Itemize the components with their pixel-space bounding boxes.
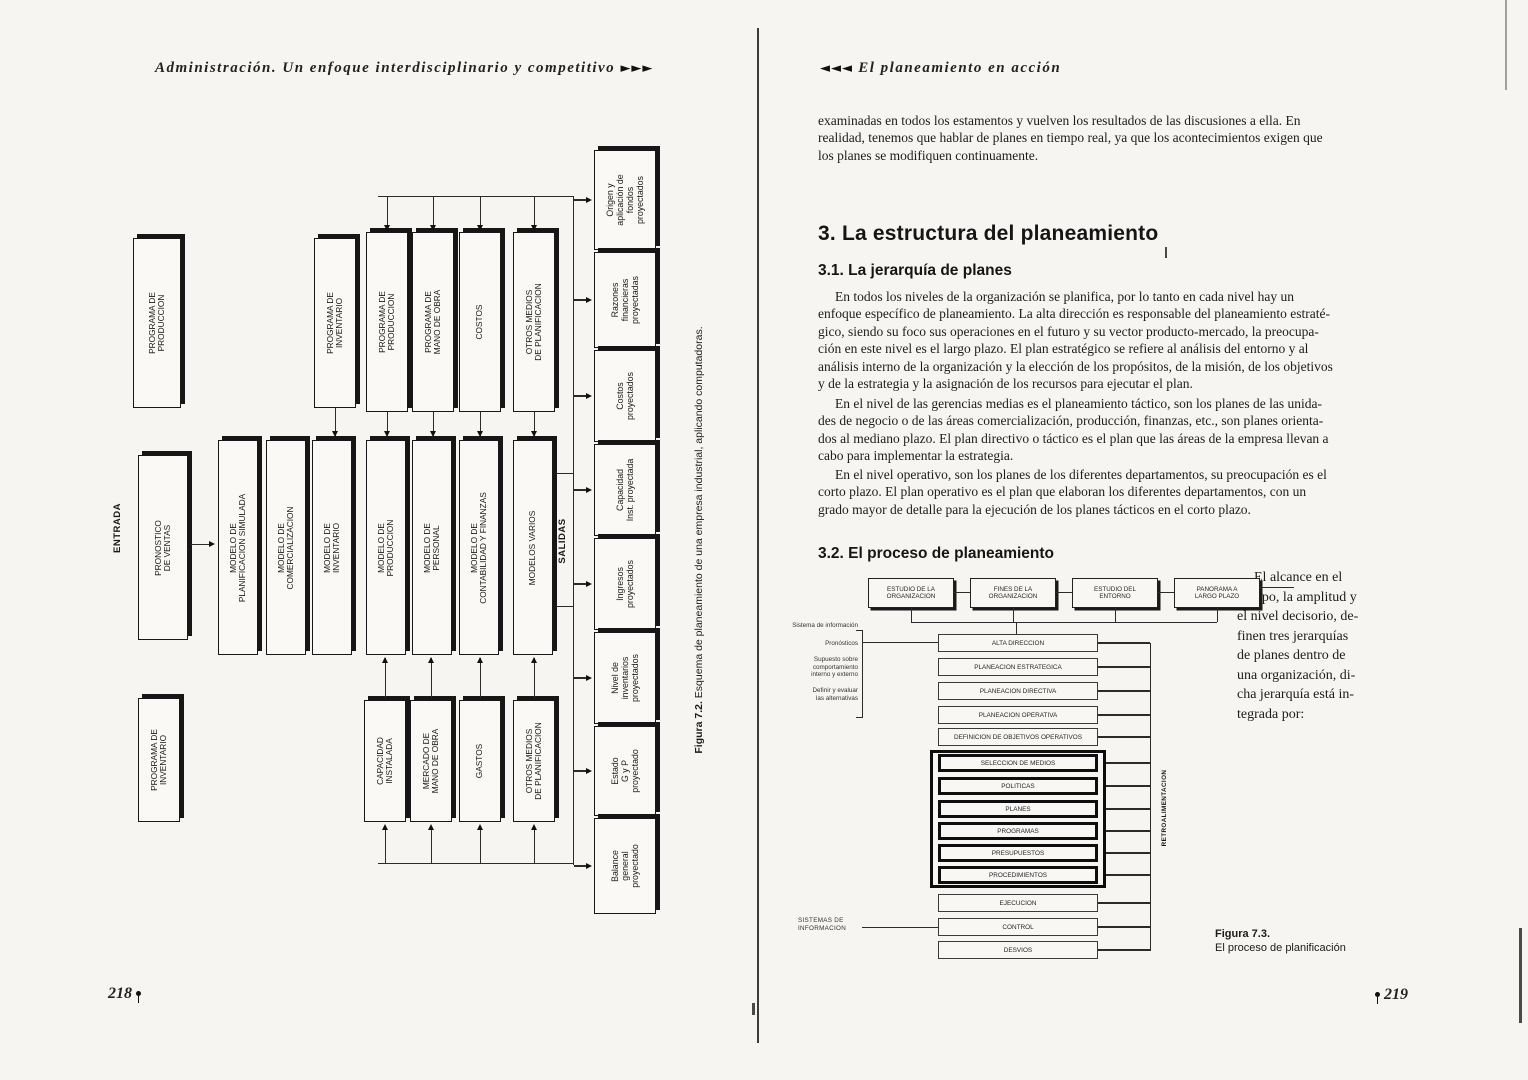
box-fig73-top-2: ESTUDIO DEL ENTORNO [1072, 578, 1158, 608]
box-fig73-bottom-2: DESVIOS [938, 941, 1098, 959]
box-fig73-bold-3: PROGRAMAS [938, 822, 1098, 840]
connector-line [1106, 852, 1150, 853]
connector-line [1158, 592, 1174, 593]
fig73-note-pronosticos: Pronósticos [825, 640, 858, 648]
connector-line [1106, 830, 1150, 831]
box-fig73-bold-0: SELECCION DE MEDIOS [938, 754, 1098, 772]
box-fig73-top-0: ESTUDIO DE LA ORGANIZACION [868, 578, 954, 608]
connector-line [1056, 592, 1072, 593]
connector-line [911, 622, 1217, 623]
right-page-number-text: 219 [1384, 986, 1408, 1003]
fig73-note-supuesto: Supuesto sobre comportamiento interno y … [811, 656, 858, 679]
connector-line [1217, 608, 1218, 622]
box-fig73-stack-2: PLANEACION DIRECTIVA [938, 682, 1098, 700]
box-fig73-stack-4: DEFINICION DE OBJETIVOS OPERATIVOS [938, 728, 1098, 746]
box-fig73-bold-2: PLANES [938, 800, 1098, 818]
connector-line [1106, 874, 1150, 875]
connector-line [1016, 622, 1017, 634]
box-fig73-stack-0: ALTA DIRECCION [938, 634, 1098, 652]
connector-line [1098, 690, 1150, 691]
connector-line [1098, 736, 1150, 737]
book-scan-spread: Administración. Un enfoque interdiscipli… [0, 0, 1528, 1080]
box-fig73-stack-3: PLANEACION OPERATIVA [938, 706, 1098, 724]
box-fig73-bottom-1: CONTROL [938, 918, 1098, 936]
connector-line [1150, 643, 1151, 951]
retroalimentacion-label: RETROALIMENTACION [1158, 735, 1170, 880]
box-fig73-bold-5: PROCEDIMIENTOS [938, 866, 1098, 884]
connector-line [856, 717, 863, 718]
box-fig73-stack-1: PLANEACION ESTRATEGICA [938, 658, 1098, 676]
connector-line [862, 927, 938, 928]
connector-line [856, 630, 863, 631]
connector-line [1098, 642, 1150, 643]
box-fig73-bottom-0: EJECUCION [938, 894, 1098, 912]
connector-line [911, 608, 912, 622]
connector-line [1115, 608, 1116, 622]
connector-line [1106, 785, 1150, 786]
fig73-sistemas-informacion-label: SISTEMAS DE INFORMACION [798, 917, 846, 932]
figure-7-3-diagram: Sistema de información Pronósticos Supue… [0, 0, 1528, 1080]
connector-line [1098, 902, 1150, 903]
figure-7-3-caption-text: El proceso de planificación [1215, 942, 1395, 956]
connector-line [954, 592, 970, 593]
connector-line [1260, 587, 1294, 588]
retroalimentacion-label-wrap: RETROALIMENTACION [1154, 735, 1174, 880]
figure-7-3-caption-label: Figura 7.3. [1215, 928, 1395, 942]
box-fig73-bold-4: PRESUPUESTOS [938, 844, 1098, 862]
right-page-number: 219 [1375, 986, 1408, 1004]
connector-line [863, 642, 938, 643]
connector-line [1013, 608, 1014, 622]
connector-line [1098, 949, 1150, 950]
connector-line [1106, 762, 1150, 763]
pin-mark-icon [1375, 992, 1380, 997]
connector-line [1098, 714, 1150, 715]
box-fig73-top-3: PANORAMA A LARGO PLAZO [1174, 578, 1260, 608]
figure-7-3-caption: Figura 7.3. El proceso de planificación [1215, 928, 1395, 955]
box-fig73-top-1: FINES DE LA ORGANIZACION [970, 578, 1056, 608]
connector-line [1098, 926, 1150, 927]
connector-line [1098, 666, 1150, 667]
box-fig73-bold-1: POLITICAS [938, 777, 1098, 795]
connector-line [1106, 808, 1150, 809]
fig73-note-definir: Definir y evaluar las alternativas [813, 687, 859, 702]
connector-line [862, 630, 863, 718]
fig73-note-sistema: Sistema de información [792, 622, 858, 630]
